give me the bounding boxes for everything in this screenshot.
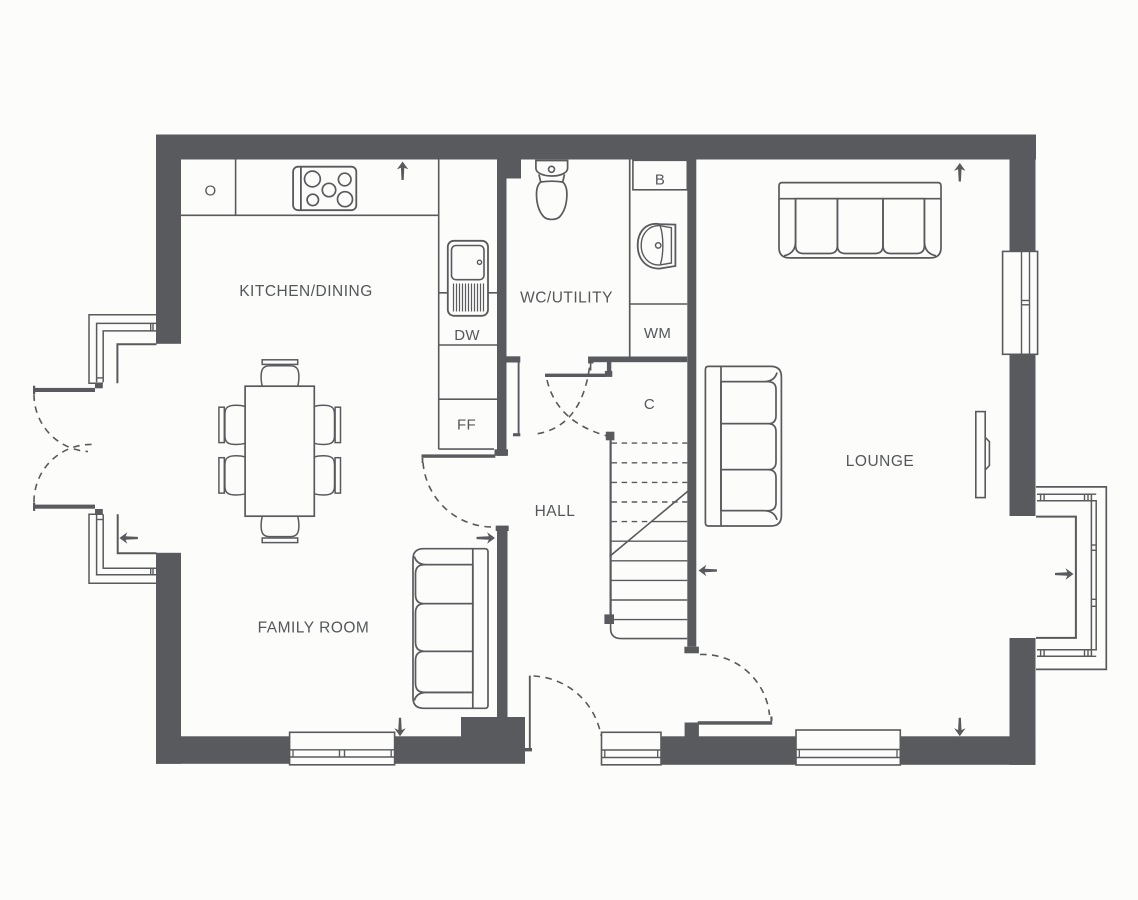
svg-text:O: O <box>205 182 217 199</box>
svg-text:C: C <box>644 396 655 413</box>
svg-text:FF: FF <box>457 417 476 434</box>
svg-text:LOUNGE: LOUNGE <box>846 453 914 470</box>
svg-text:WM: WM <box>644 325 671 342</box>
svg-text:FAMILY ROOM: FAMILY ROOM <box>258 620 370 637</box>
svg-text:DW: DW <box>454 327 480 344</box>
svg-text:HALL: HALL <box>535 503 576 520</box>
svg-text:KITCHEN/DINING: KITCHEN/DINING <box>239 283 373 300</box>
svg-text:B: B <box>655 172 665 189</box>
svg-text:WC/UTILITY: WC/UTILITY <box>520 290 613 307</box>
